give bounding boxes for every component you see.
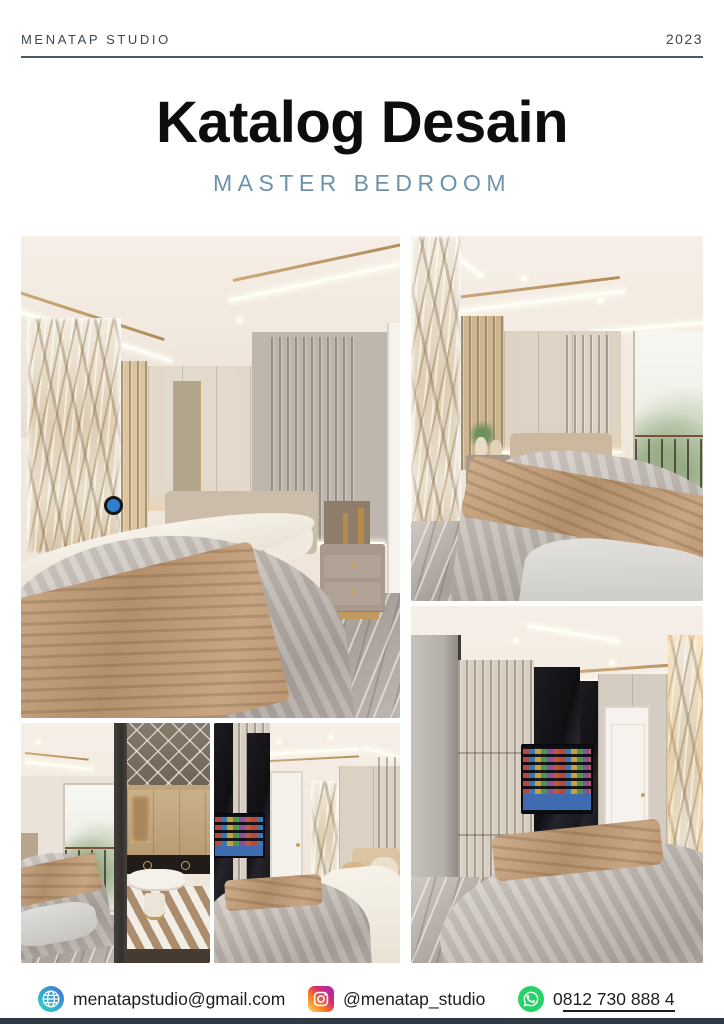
photo-bedroom-tv-wall [411,606,703,963]
floor-plinth [127,949,210,963]
mirror-grid-ceiling [127,723,210,785]
vanity-stool [144,893,165,920]
whatsapp-icon [518,986,544,1012]
vanity-table [129,869,186,888]
downlight [610,660,615,665]
chevron-floor [127,886,210,948]
studio-name: MENATAP STUDIO [21,32,171,47]
whatsapp-number-main: 812 730 888 4 [563,989,675,1012]
wardrobe-divider [114,723,127,963]
led-strip [434,289,626,315]
led-strip [25,761,93,770]
mirror-strip [173,381,202,506]
led-strip [528,624,620,643]
catalog-page: MENATAP STUDIO 2023 Katalog Desain MASTE… [0,0,724,1024]
tv [522,745,592,813]
photo-bedroom-wardrobe-view [21,723,210,963]
downlight [522,276,527,281]
ceiling-gold-trim [25,752,89,761]
candlestick [358,508,363,547]
wood-slat-strip [121,361,148,535]
glass-doorway [411,635,461,913]
photo-bedroom-tv-view [214,723,400,963]
candlestick [343,513,348,547]
door-frame [387,323,400,622]
downlight [598,298,603,303]
throw-blanket [224,873,323,911]
bottom-bar [0,1018,724,1024]
photo-bedroom-main [21,236,400,718]
year-label: 2023 [666,31,703,47]
email-label: menatapstudio@gmail.com [73,989,285,1010]
page-subtitle: MASTER BEDROOM [0,170,724,197]
email-contact[interactable]: menatapstudio@gmail.com [38,984,285,1014]
downlight [277,740,281,744]
tv [214,814,264,857]
page-title: Katalog Desain [0,90,724,157]
whatsapp-number-prefix: 0 [553,989,563,1009]
marble-accent-wall [411,236,461,565]
whatsapp-number: 0812 730 888 4 [553,989,675,1010]
instagram-label: @menatap_studio [343,989,485,1010]
photo-bedroom-window [411,236,703,601]
instagram-contact[interactable]: @menatap_studio [308,984,485,1014]
downlight [237,318,242,323]
marble-accent-wall [27,318,122,554]
downlight [513,638,518,643]
ceiling-gold-trim [440,276,620,301]
downlight [36,740,40,744]
downlight [329,735,333,739]
globe-icon [38,986,64,1012]
shelf-niche [131,795,150,843]
whatsapp-contact[interactable]: 0812 730 888 4 [518,984,675,1014]
header-rule [21,56,703,58]
instagram-icon [308,986,334,1012]
